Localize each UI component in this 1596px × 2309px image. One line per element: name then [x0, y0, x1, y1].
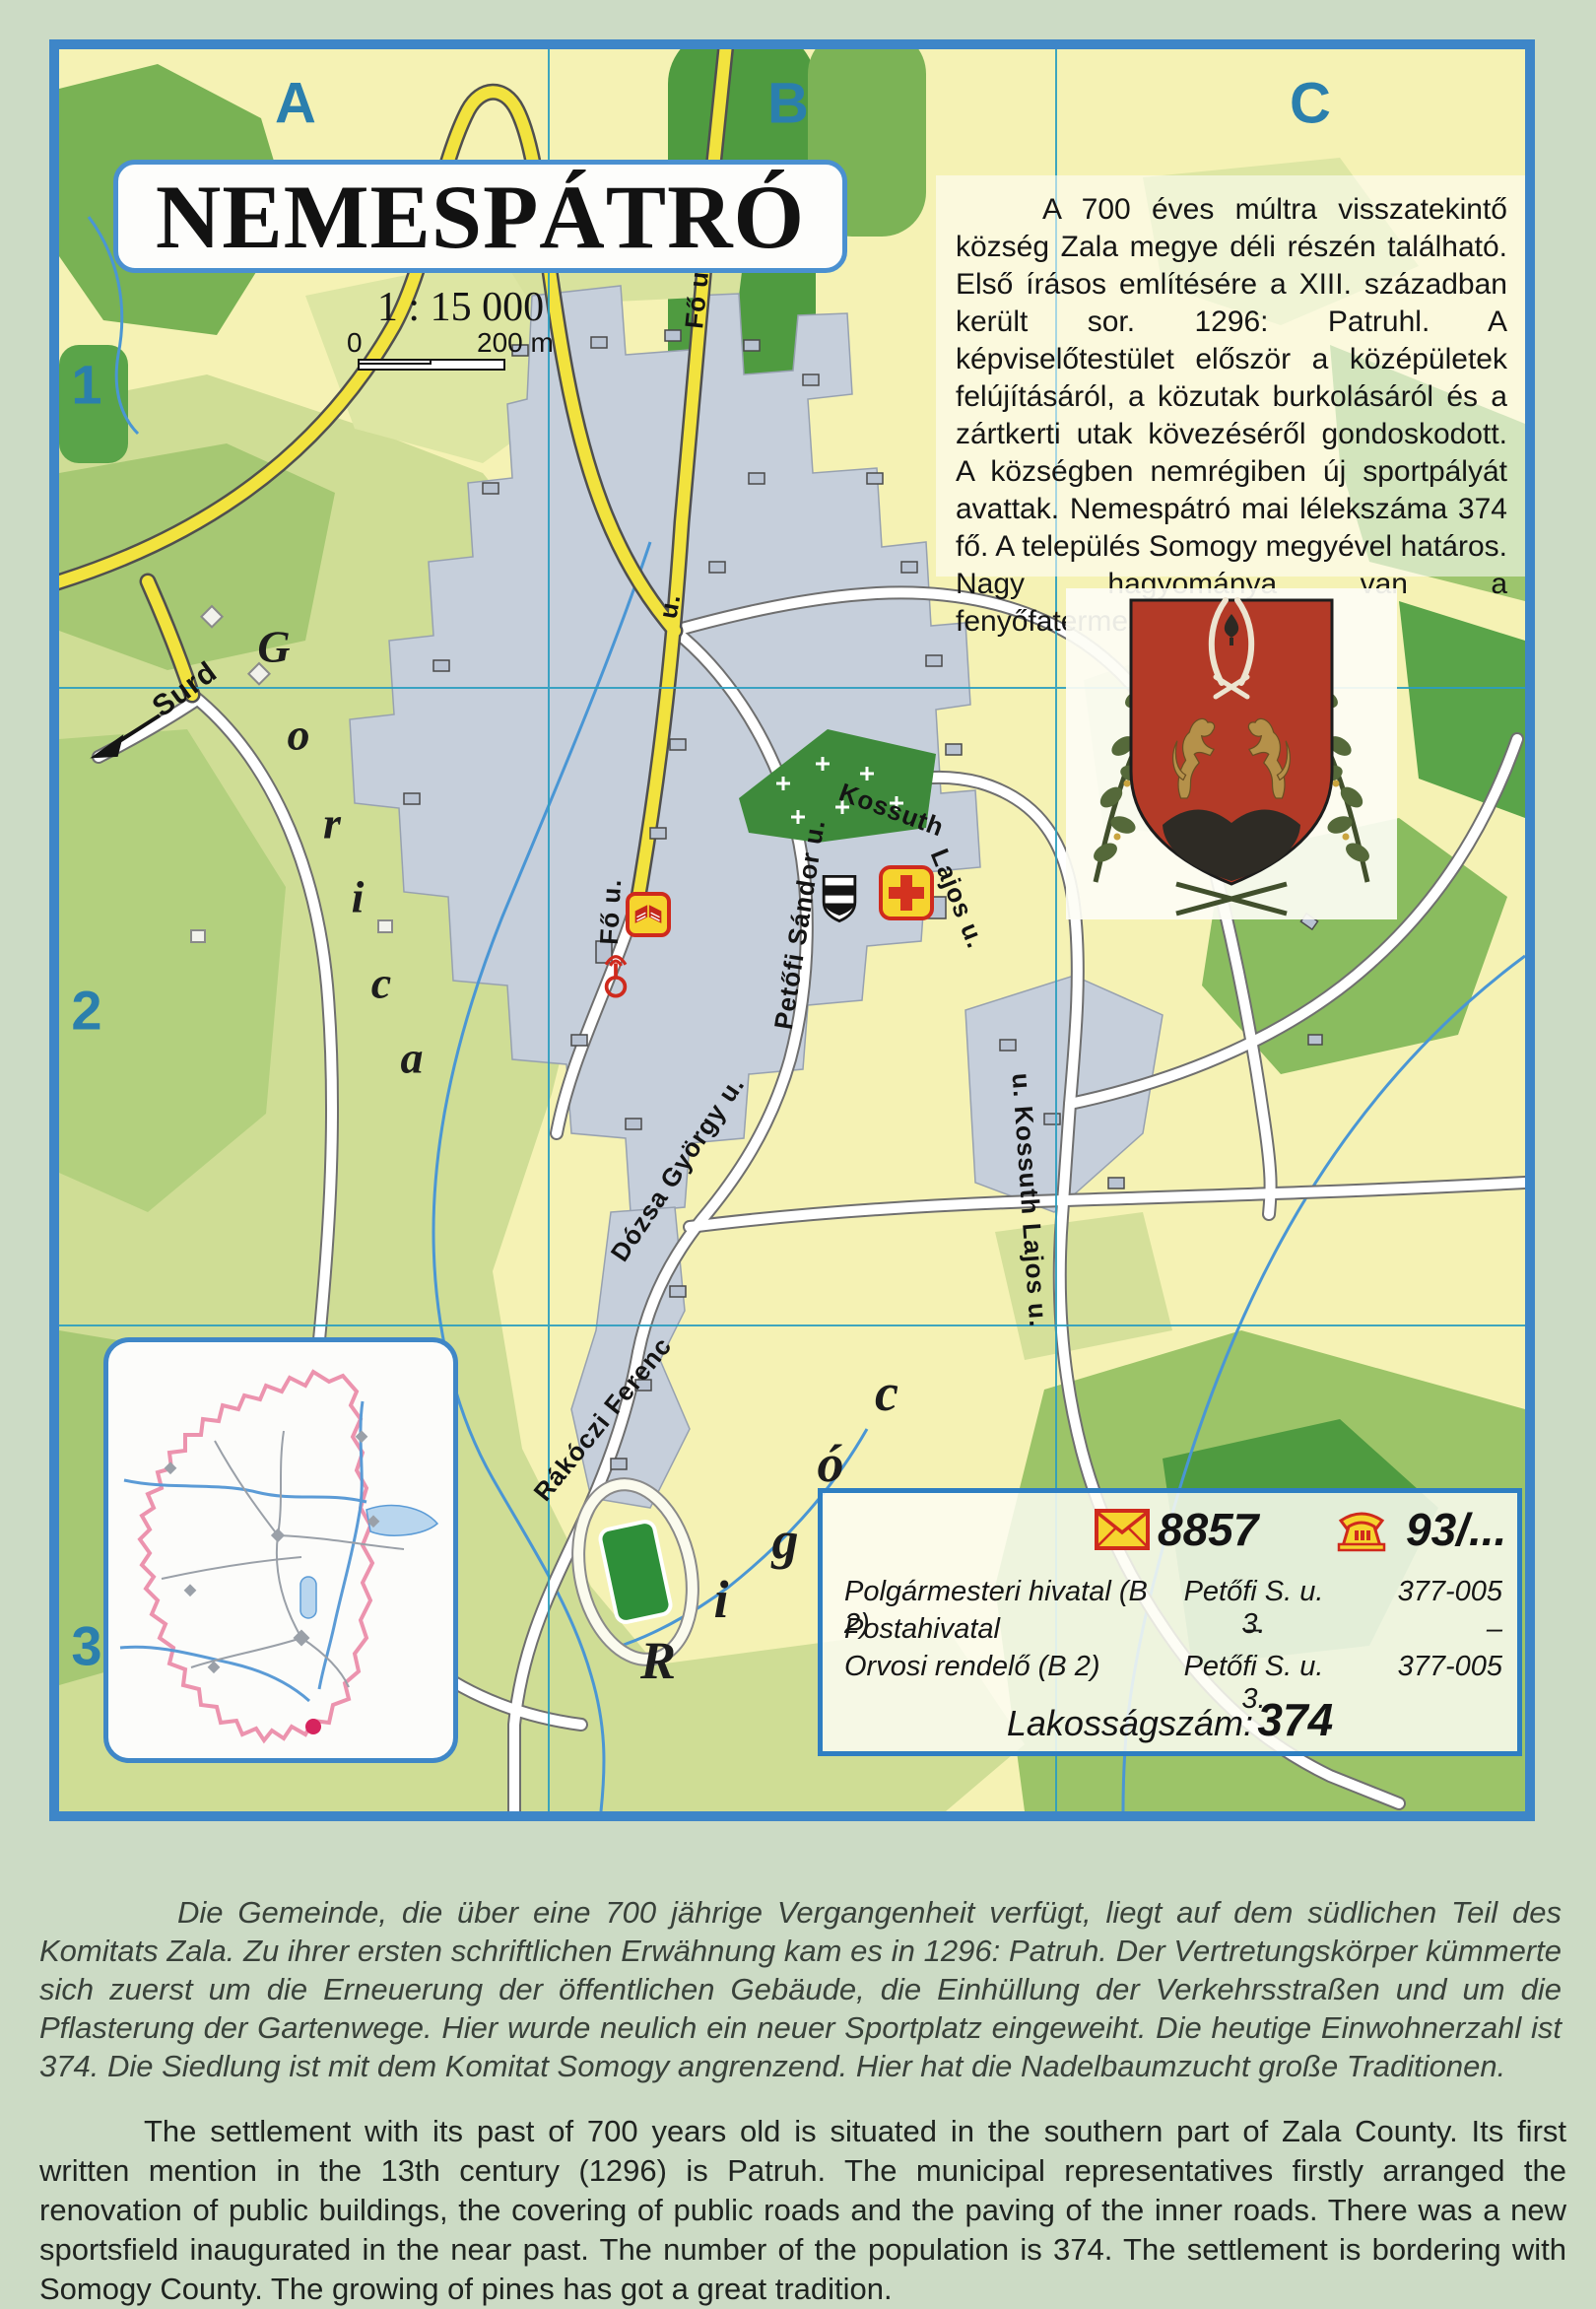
envelope-icon: [1095, 1509, 1150, 1555]
contact-infobox: 8857 93/... Polgármesteri hivatal (B 2) …: [818, 1488, 1522, 1756]
grid-column-a: A: [275, 71, 316, 137]
poi-phone: 377-005: [1370, 1651, 1502, 1683]
scale-bar-segment: [360, 361, 432, 365]
poi-phone: –: [1370, 1613, 1502, 1646]
crossed-stems: [1176, 884, 1287, 914]
area-label-rigoc-letter: i: [713, 1569, 728, 1630]
monument-icon: [596, 951, 635, 1000]
cross-glyph: [883, 869, 930, 917]
striped-shield-icon: [820, 873, 859, 924]
description-text-de: Die Gemeinde, die über eine 700 jährige …: [39, 1893, 1562, 2085]
grid-row-3: 3: [71, 1614, 101, 1678]
area-label-rigoc-letter: R: [640, 1630, 676, 1691]
town-map-panel: A B C 1 2 3 Fő u. u. Fő u. Petőfi Sándor…: [49, 39, 1535, 1821]
rotary-phone-icon: [1331, 1507, 1392, 1557]
open-book-glyph: [632, 902, 664, 927]
population-line: Lakosságszám: 374: [823, 1693, 1517, 1746]
area-label-rigoc-letter: g: [772, 1510, 799, 1571]
area-label-gorica-letter: o: [288, 709, 310, 761]
coat-of-arms-panel: [1066, 588, 1397, 919]
atlas-page: A B C 1 2 3 Fő u. u. Fő u. Petőfi Sándor…: [0, 0, 1596, 2300]
grid-column-c: C: [1290, 71, 1331, 137]
scale-zero-label: 0: [347, 327, 363, 359]
grid-row-2: 2: [71, 979, 101, 1043]
inset-rivers: [120, 1401, 366, 1701]
area-label-gorica-letter: c: [371, 957, 391, 1009]
county-locator-inset: [103, 1337, 458, 1763]
description-text-hu: A 700 éves múltra visszatekintő község Z…: [956, 191, 1507, 641]
area-label-rigoc-letter: c: [875, 1362, 898, 1423]
poi-name: Postahivatal: [844, 1613, 1174, 1646]
area-label-gorica-letter: a: [401, 1032, 424, 1084]
medical-cross-icon: [879, 865, 934, 920]
inset-roads: [162, 1431, 404, 1687]
poi-name: Orvosi rendelő (B 2): [844, 1651, 1174, 1683]
street-label-u: u.: [653, 591, 688, 621]
area-label-gorica-letter: G: [257, 621, 290, 673]
town-title-banner: NEMESPÁTRÓ: [113, 160, 847, 273]
area-label-gorica-letter: i: [352, 871, 365, 923]
monument-glyph: [596, 951, 635, 1000]
phone-prefix: 93/...: [1406, 1503, 1506, 1556]
population-label: Lakosságszám:: [1007, 1703, 1253, 1743]
postal-code: 8857: [1158, 1503, 1258, 1556]
street-label-fo-lower: Fő u.: [594, 878, 628, 946]
county-boundary: [140, 1372, 372, 1740]
population-value: 374: [1257, 1694, 1333, 1745]
infobox-row: Polgármesteri hivatal (B 2) Petőfi S. u.…: [823, 1576, 1517, 1613]
description-panel-hu: A 700 éves múltra visszatekintő község Z…: [936, 175, 1525, 577]
infobox-row: Orvosi rendelő (B 2) Petőfi S. u. 3. 377…: [823, 1651, 1517, 1688]
poi-address: –: [1177, 1613, 1330, 1646]
scale-bar: [358, 359, 505, 371]
county-map: [108, 1342, 453, 1758]
grid-column-b: B: [767, 71, 809, 137]
description-text-en: The settlement with its past of 700 year…: [39, 2112, 1566, 2309]
scale-end-label: 200 m: [477, 327, 554, 359]
inset-pond: [300, 1577, 316, 1618]
scale-ratio: 1 : 15 000: [355, 284, 566, 331]
book-icon: [626, 892, 671, 937]
area-label-rigoc-letter: ó: [818, 1433, 844, 1494]
town-location-dot: [305, 1719, 321, 1734]
shield-glyph: [820, 873, 859, 924]
poi-phone: 377-005: [1370, 1576, 1502, 1608]
grid-row-1: 1: [71, 353, 101, 417]
coat-of-arms: [1066, 588, 1397, 919]
town-title: NEMESPÁTRÓ: [156, 165, 805, 269]
infobox-row: Postahivatal – –: [823, 1613, 1517, 1651]
map-canvas: A B C 1 2 3 Fő u. u. Fő u. Petőfi Sándor…: [59, 49, 1525, 1811]
inset-towns: [165, 1430, 380, 1673]
area-label-gorica-letter: r: [323, 797, 341, 849]
